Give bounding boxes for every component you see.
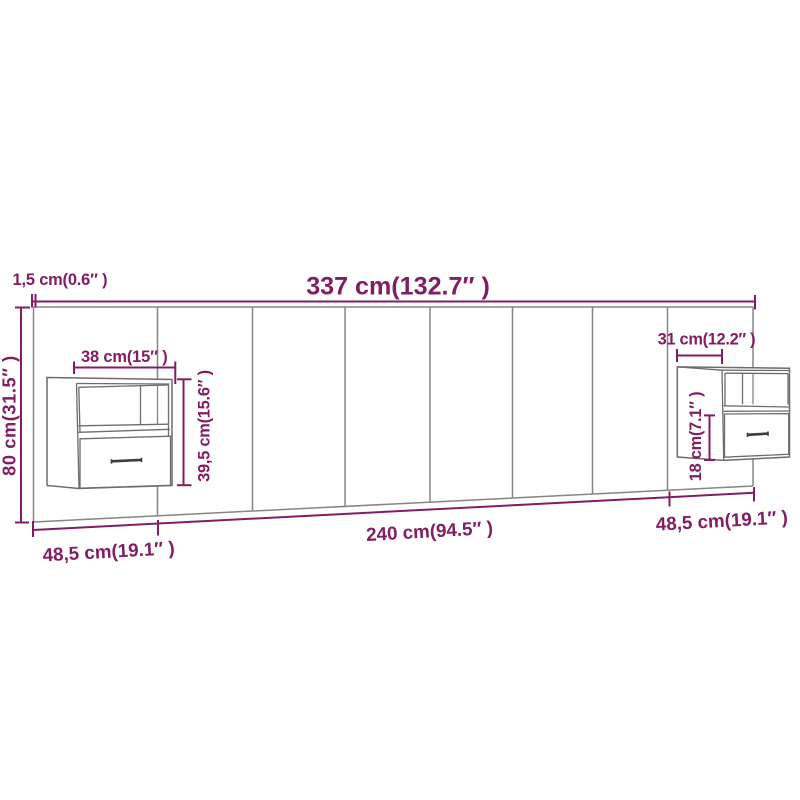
svg-text:80 cm(31.5″ ): 80 cm(31.5″ ) bbox=[0, 355, 20, 476]
svg-text:31 cm(12.2″ ): 31 cm(12.2″ ) bbox=[658, 331, 756, 349]
svg-text:337 cm(132.7″ ): 337 cm(132.7″ ) bbox=[306, 273, 490, 301]
svg-text:39,5 cm(15.6″ ): 39,5 cm(15.6″ ) bbox=[196, 370, 214, 482]
svg-text:38 cm(15″ ): 38 cm(15″ ) bbox=[81, 348, 168, 366]
svg-text:18 cm(7.1″ ): 18 cm(7.1″ ) bbox=[687, 392, 705, 482]
svg-text:1,5 cm(0.6″ ): 1,5 cm(0.6″ ) bbox=[13, 271, 108, 289]
